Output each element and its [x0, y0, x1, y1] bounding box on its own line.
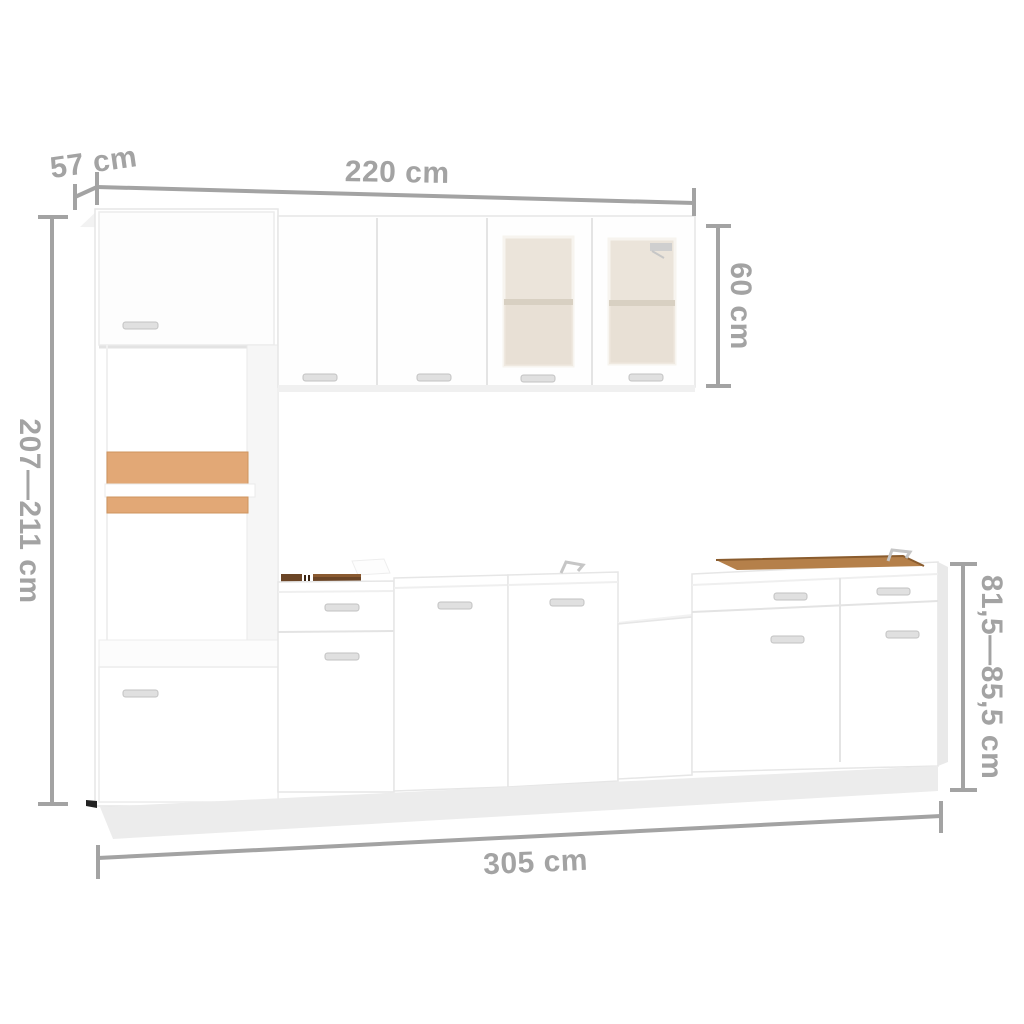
tall-cabinet-niche-floor: [99, 640, 278, 667]
glass-lower-tint: [609, 306, 675, 364]
base-unit-door: [394, 575, 508, 791]
glass-door-hinge: [650, 243, 672, 251]
label-base-height: 81,5—85,5 cm: [975, 575, 1008, 779]
base-unit-low: [618, 614, 692, 779]
cabinet-handle: [774, 593, 807, 600]
base-unit-drawer-door: [278, 559, 394, 792]
base-unit-front: [618, 617, 692, 779]
label-total-width: 305 cm: [483, 844, 589, 882]
cabinet-handle: [550, 599, 584, 606]
dimension-base-height: [950, 564, 977, 790]
cabinet-handle: [325, 653, 359, 660]
cabinet-handle: [877, 588, 910, 595]
dim-line: [97, 187, 694, 203]
cabinet-handle: [325, 604, 359, 611]
hob-cutout-mark: [304, 575, 306, 581]
tall-cabinet: [80, 209, 278, 808]
drawer-bottom-line: [278, 631, 394, 632]
cabinet-handle: [771, 636, 804, 643]
glass-lower-tint: [504, 305, 573, 366]
base-unit-back-rim: [352, 559, 390, 575]
hob-cutout-mark: [308, 575, 310, 581]
cabinet-handle: [629, 374, 663, 381]
niche-back-panel-upper: [107, 452, 248, 484]
base-unit-front: [278, 581, 394, 792]
tall-cabinet-foot-mark: [86, 800, 97, 808]
hob-cutout-edge: [281, 574, 302, 582]
cabinet-handle: [886, 631, 919, 638]
glass-shelf-line: [609, 300, 675, 306]
glass-door-panel: [504, 237, 573, 366]
wall-cabinet-bottom-face: [278, 385, 695, 392]
wall-cabinet-row: [278, 216, 695, 392]
niche-shelf: [105, 484, 255, 497]
kitchen-dimension-diagram: 57 cm 220 cm 60 cm 207—211 cm 81,5—85,5 …: [0, 0, 1024, 1024]
glass-shelf-line: [504, 299, 573, 305]
base-unit-side-face: [938, 562, 948, 766]
tall-cabinet-lower-door: [99, 667, 278, 802]
label-depth: 57 cm: [48, 140, 139, 185]
niche-back-panel-lower: [107, 497, 248, 513]
sink-mounting-clip: [561, 562, 583, 573]
hob-cutout-edge-light: [313, 574, 361, 577]
base-unit-door: [508, 562, 618, 787]
kitchen-set-illustration: [80, 209, 948, 839]
label-total-height: 207—211 cm: [13, 418, 46, 603]
cabinet-handle: [303, 374, 337, 381]
glass-door-panel: [609, 239, 675, 364]
base-unit-wide: [692, 550, 948, 772]
cabinet-handle: [417, 374, 451, 381]
label-wall-height: 60 cm: [724, 262, 757, 350]
label-upper-width: 220 cm: [345, 155, 450, 190]
cabinet-handle: [521, 375, 555, 382]
cabinet-handle: [123, 322, 158, 329]
drawer-top-line: [278, 591, 394, 592]
product-image: 57 cm 220 cm 60 cm 207—211 cm 81,5—85,5 …: [0, 0, 1024, 1024]
cabinet-handle: [123, 690, 158, 697]
cabinet-handle: [438, 602, 472, 609]
dim-line: [75, 187, 97, 197]
